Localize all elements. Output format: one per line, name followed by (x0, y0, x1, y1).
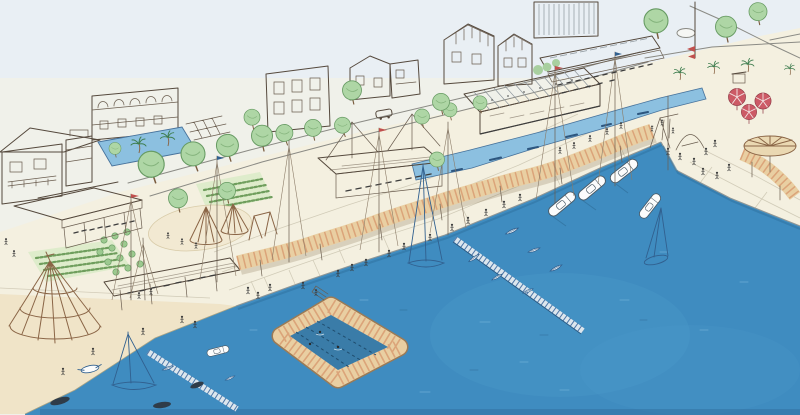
waterfront-masterplan-sketch (0, 0, 800, 415)
sketch-canvas (0, 0, 800, 415)
